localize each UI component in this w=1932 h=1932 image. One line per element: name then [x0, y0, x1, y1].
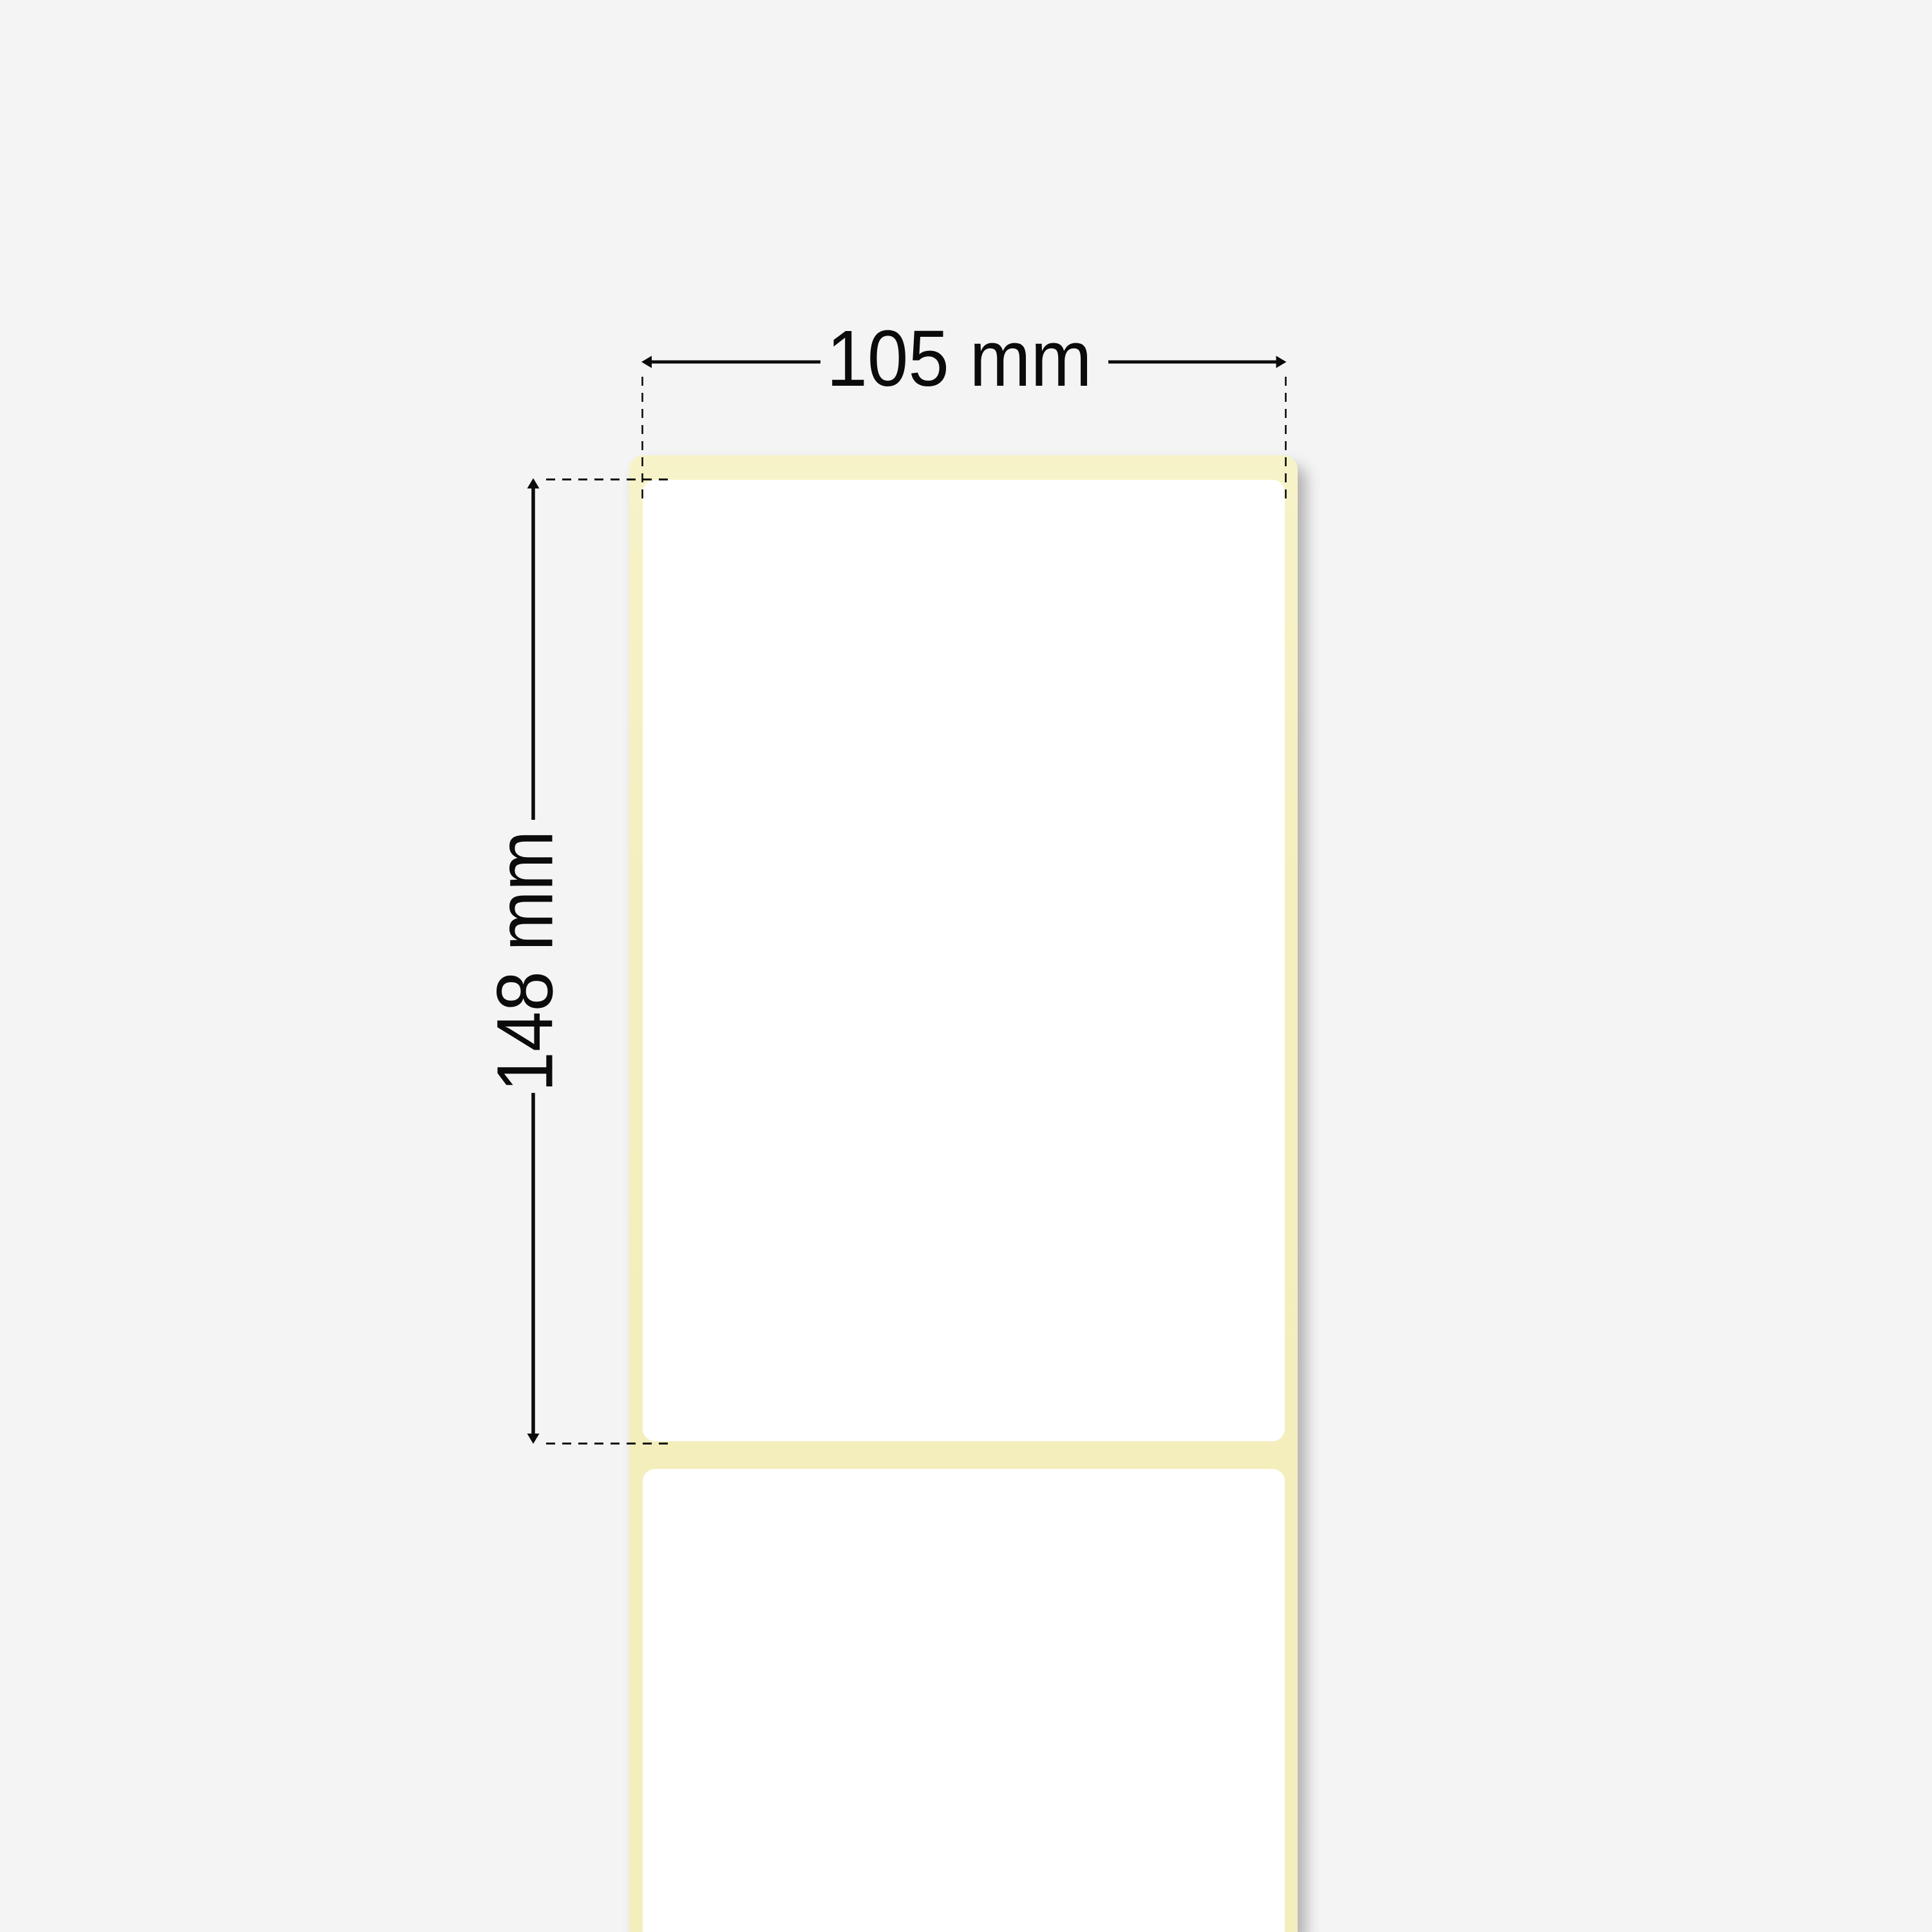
svg-text:148 mm: 148 mm — [482, 831, 570, 1092]
svg-text:105 mm: 105 mm — [827, 315, 1092, 403]
